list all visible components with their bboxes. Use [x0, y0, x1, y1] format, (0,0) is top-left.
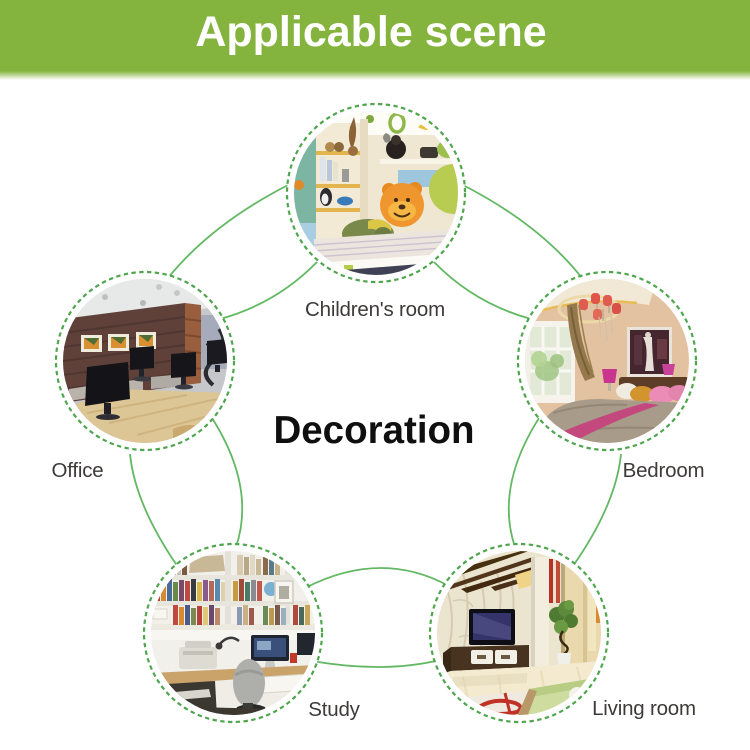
svg-text:Decoration: Decoration — [273, 409, 474, 452]
svg-text:Office: Office — [52, 459, 104, 482]
svg-text:Applicable scene: Applicable scene — [195, 8, 546, 56]
svg-text:Children's room: Children's room — [305, 298, 445, 321]
svg-text:Study: Study — [308, 698, 360, 721]
svg-text:Bedroom: Bedroom — [623, 459, 705, 482]
svg-text:Living room: Living room — [592, 697, 696, 720]
